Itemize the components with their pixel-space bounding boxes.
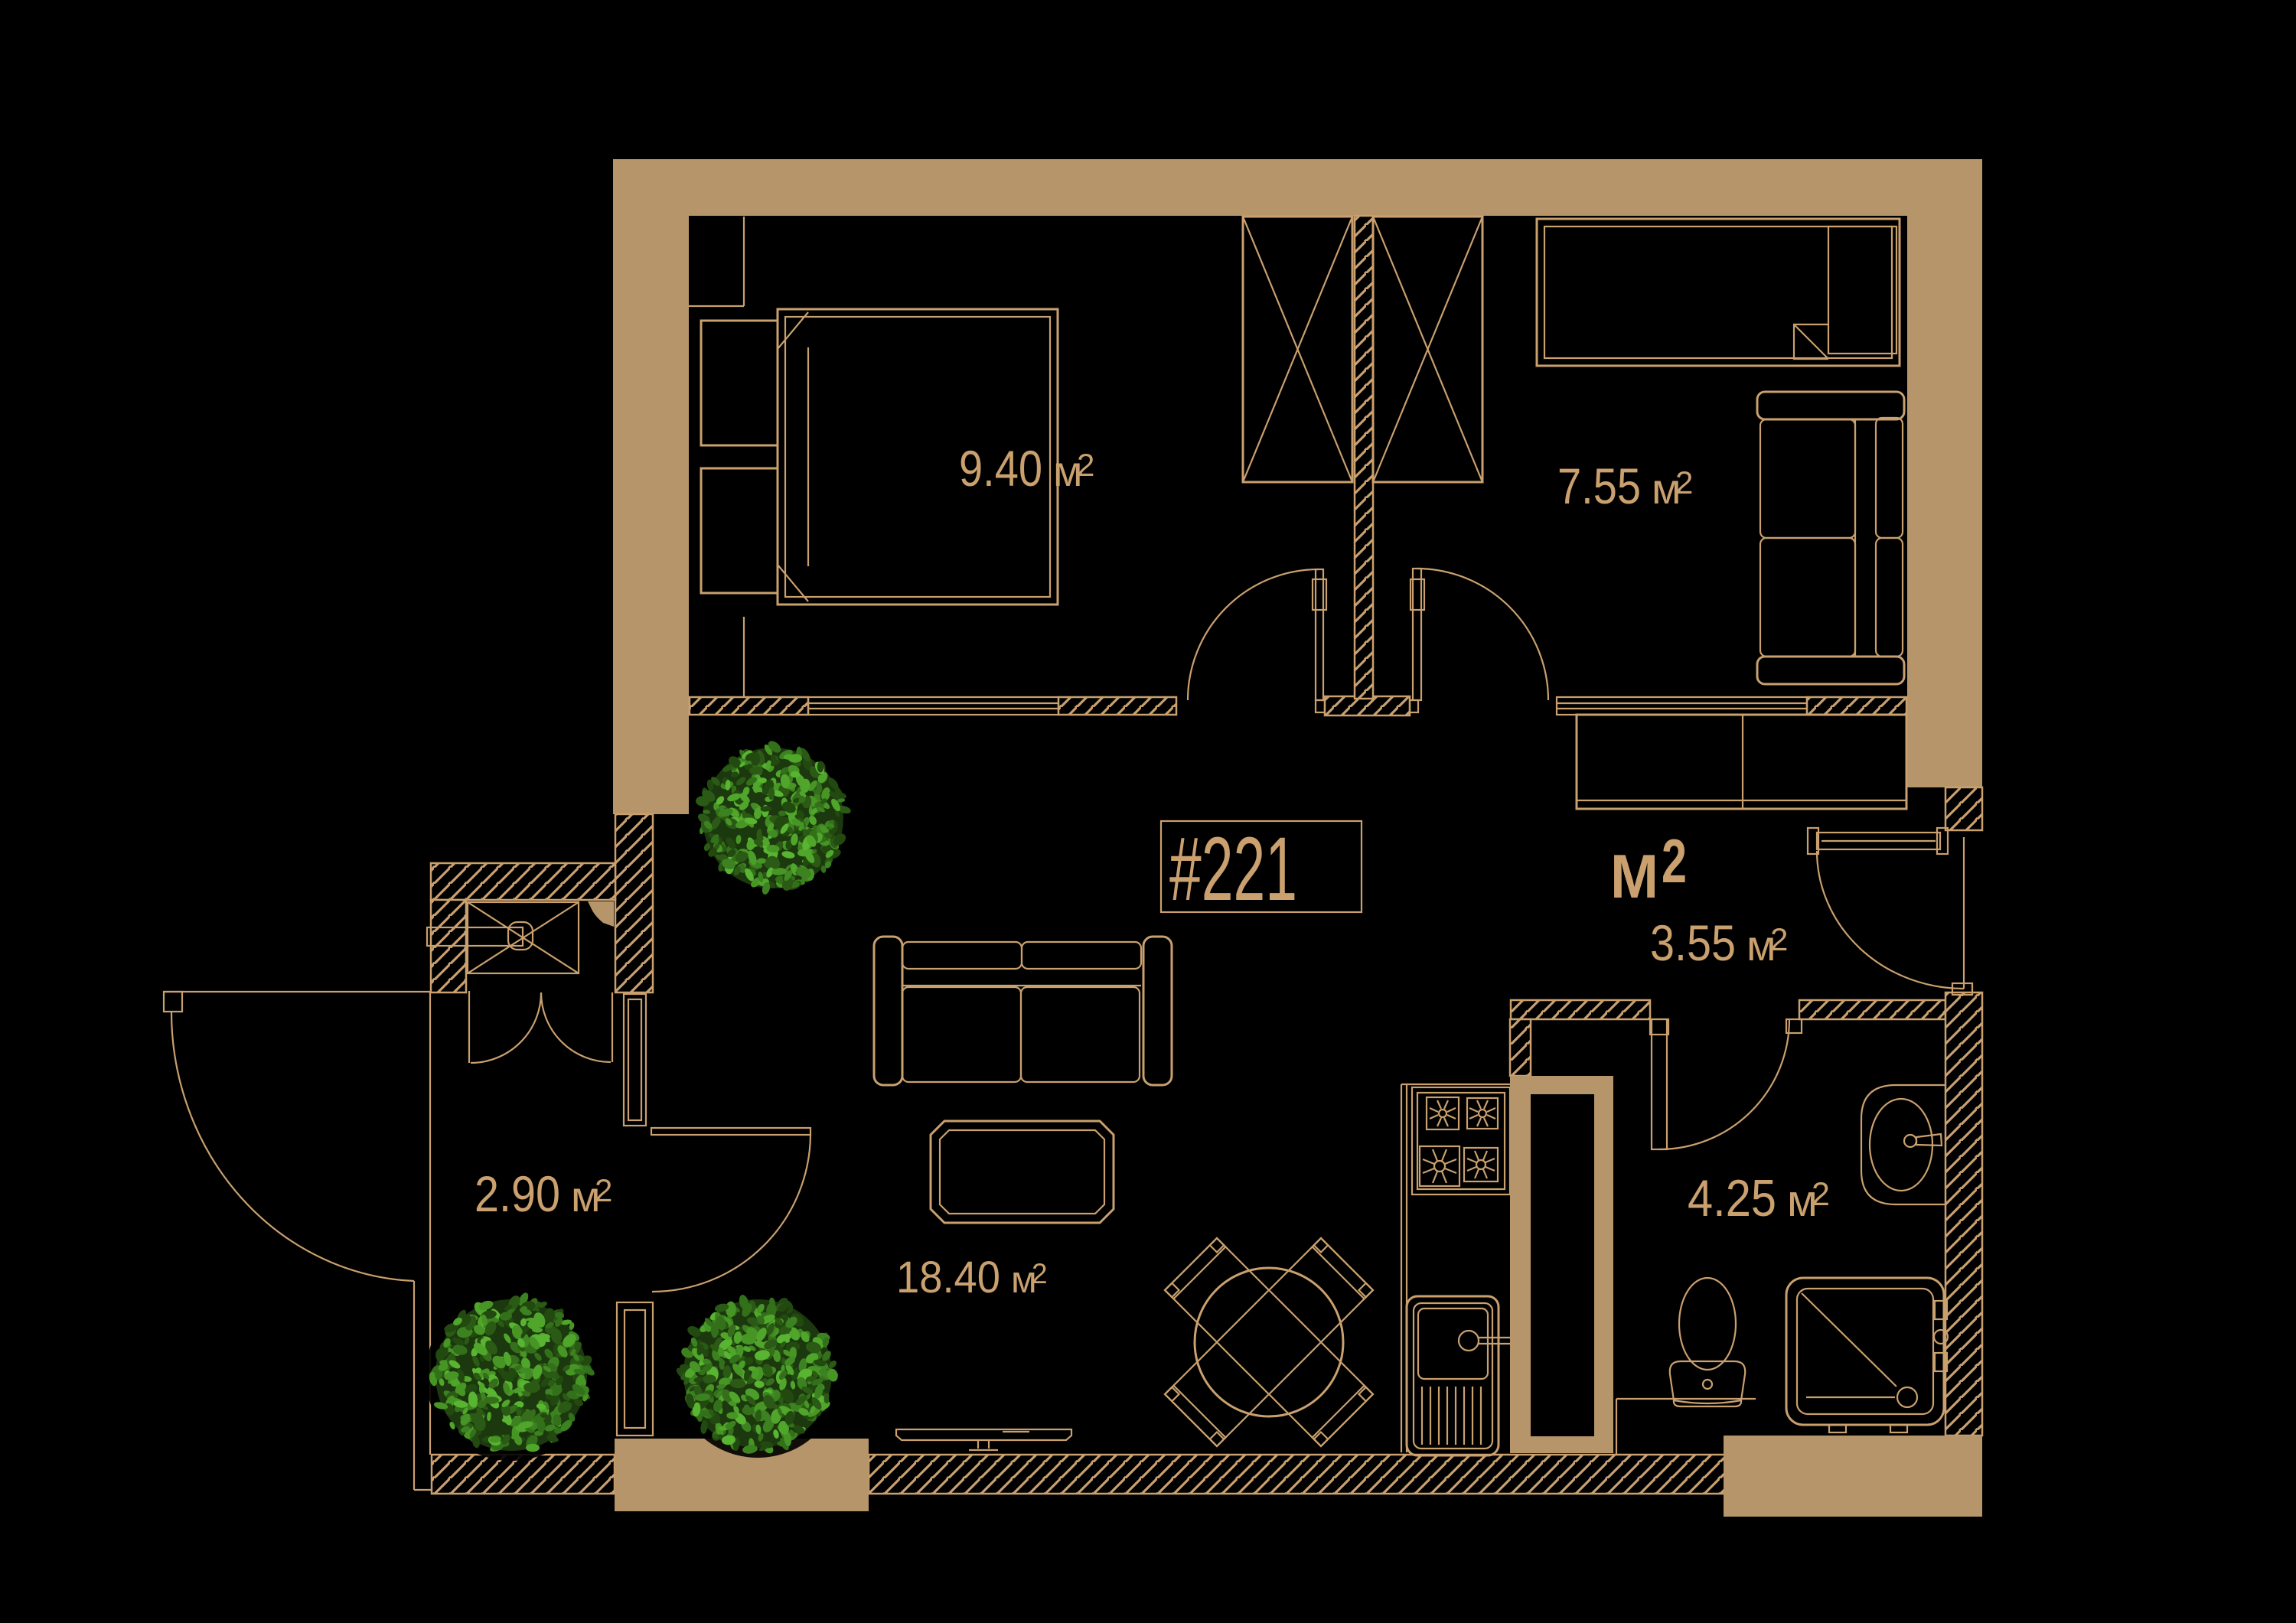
svg-text:2: 2 <box>1812 1176 1830 1213</box>
svg-text:3.55: 3.55 <box>1650 914 1736 971</box>
svg-text:2: 2 <box>1077 447 1094 483</box>
svg-text:2: 2 <box>1675 464 1693 500</box>
svg-text:4.25: 4.25 <box>1688 1169 1776 1227</box>
svg-text:#221: #221 <box>1169 819 1297 920</box>
svg-text:2: 2 <box>1770 921 1788 957</box>
svg-text:7.55: 7.55 <box>1557 458 1641 514</box>
svg-text:2: 2 <box>1032 1258 1048 1289</box>
svg-text:М: М <box>1610 842 1658 911</box>
svg-text:18.40: 18.40 <box>896 1253 1000 1302</box>
svg-text:2.90: 2.90 <box>475 1165 560 1222</box>
svg-text:2: 2 <box>595 1172 612 1208</box>
svg-text:9.40: 9.40 <box>959 440 1042 497</box>
svg-text:2: 2 <box>1662 827 1687 896</box>
